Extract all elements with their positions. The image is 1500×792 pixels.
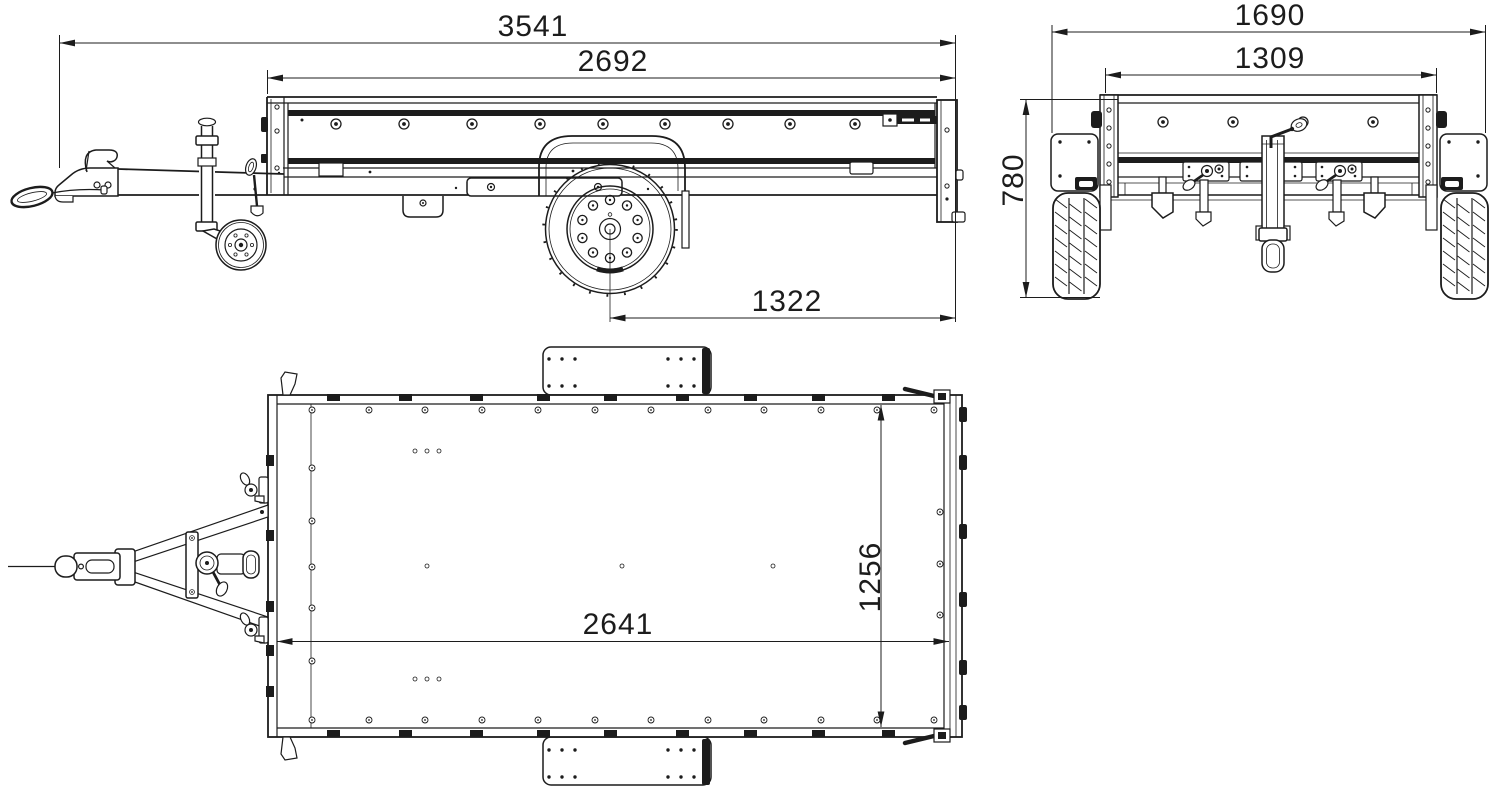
side-front-marker (261, 117, 268, 132)
dim-box-width: 1309 (1106, 42, 1437, 93)
dim-label-axle-to-rear: 1322 (752, 285, 823, 318)
front-left-fender (1051, 134, 1098, 191)
top-jockey-wheel (196, 551, 259, 598)
front-left-marker (1091, 111, 1102, 128)
dim-axle-to-rear: 1322 (610, 285, 956, 321)
dim-label-bed-width: 1256 (854, 542, 887, 613)
dim-box-length: 2692 (268, 45, 956, 94)
side-coupling (9, 150, 118, 211)
dim-overall-length: 3541 (60, 10, 956, 322)
trailer-technical-drawing: 3541 2692 1322 (0, 0, 1500, 792)
side-dimensions: 3541 2692 1322 (60, 10, 956, 322)
front-right-wheel (1441, 193, 1488, 299)
side-tipping-lever (244, 154, 267, 216)
front-right-latch-lever (1314, 162, 1362, 226)
front-right-fender (1440, 134, 1487, 191)
dim-label-box-length: 2692 (578, 45, 649, 78)
dim-label-box-width: 1309 (1235, 42, 1306, 75)
front-view: 1690 1309 780 (997, 0, 1488, 299)
top-drawbar (8, 471, 268, 643)
front-left-wheel (1053, 193, 1100, 299)
front-right-marker (1436, 111, 1447, 128)
side-rear-post (937, 100, 957, 222)
top-coupling (8, 553, 120, 580)
top-right-fender (543, 737, 711, 785)
front-left-latch-lever (1181, 162, 1229, 226)
top-front-latch-upper (238, 471, 268, 503)
top-left-fender (543, 347, 711, 395)
front-left-suspension (1100, 185, 1111, 230)
side-frame (118, 162, 937, 217)
side-view: 3541 2692 1322 (9, 10, 965, 322)
front-right-suspension (1426, 185, 1437, 230)
dim-label-overall-width: 1690 (1235, 0, 1306, 32)
drawing-canvas: 3541 2692 1322 (0, 0, 1500, 792)
top-view: 2641 1256 (8, 347, 967, 785)
dim-label-height: 780 (997, 153, 1030, 206)
dim-label-overall-length: 3541 (498, 10, 569, 43)
dim-label-bed-length: 2641 (583, 608, 654, 641)
side-mudflap (682, 191, 689, 248)
